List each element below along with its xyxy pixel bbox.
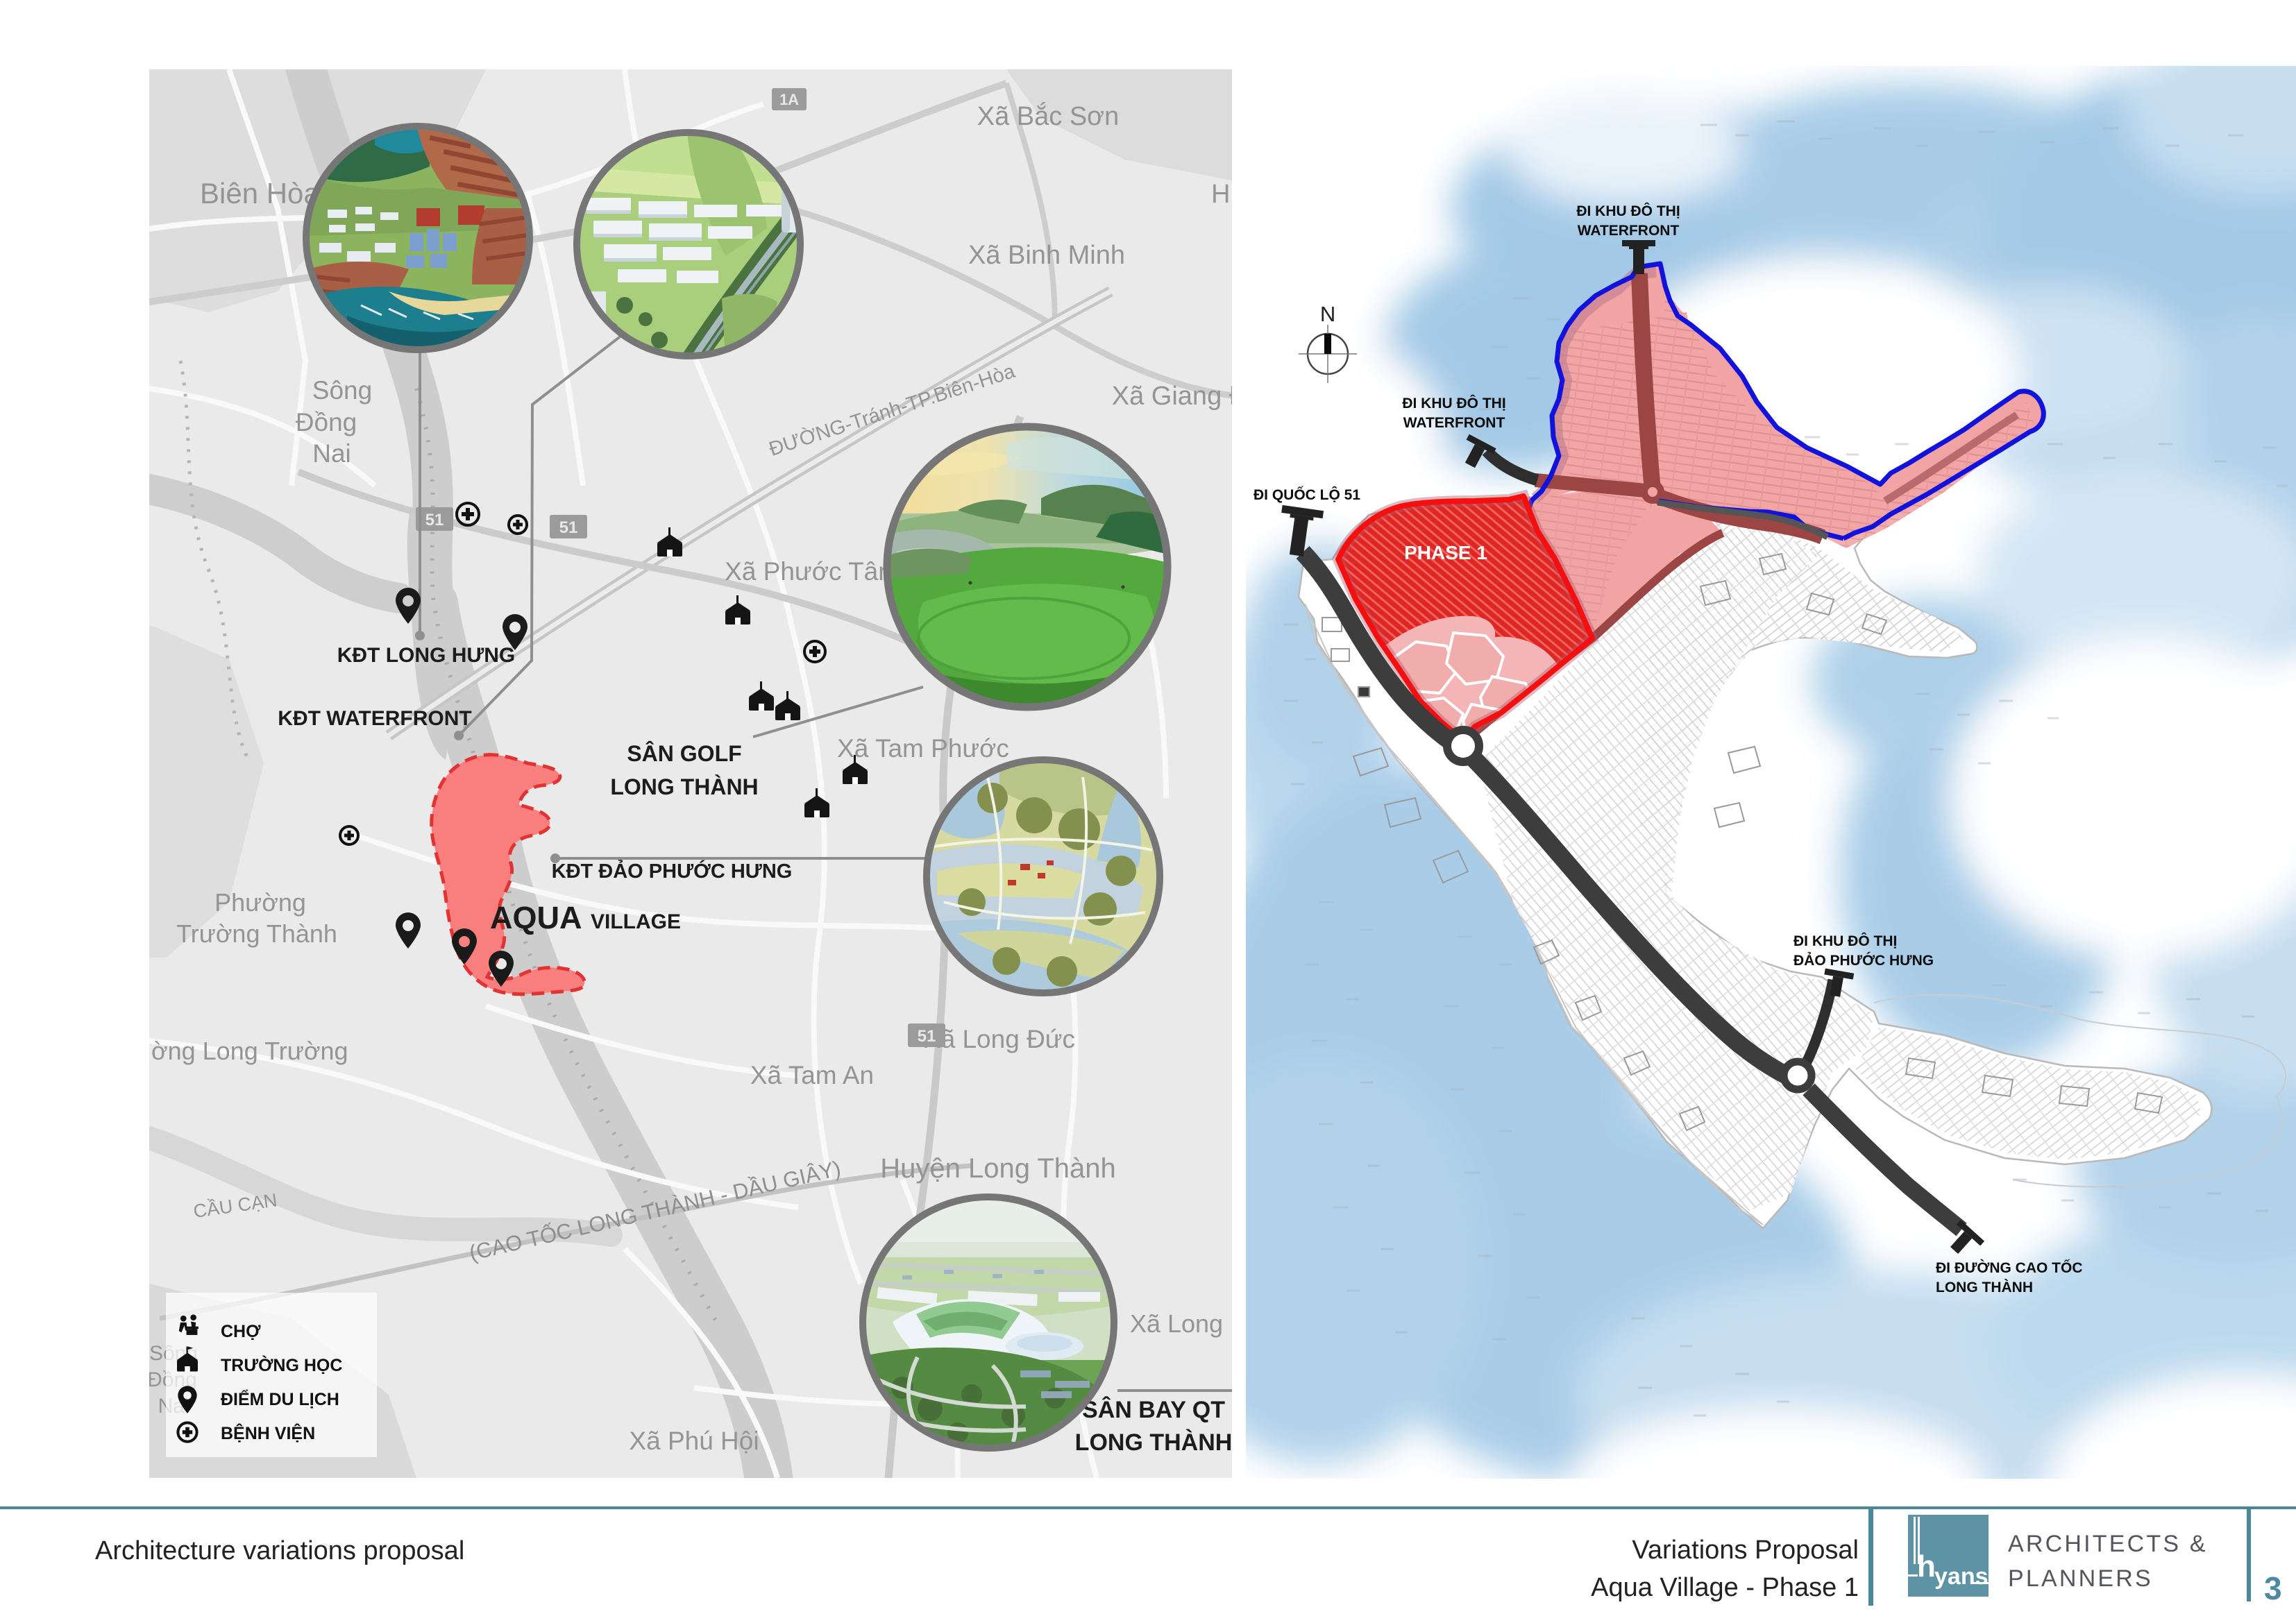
svg-text:WATERFRONT: WATERFRONT — [1578, 223, 1680, 239]
svg-text:ĐI ĐƯỜNG CAO TỐC: ĐI ĐƯỜNG CAO TỐC — [1936, 1259, 2083, 1276]
svg-text:PHASE 1: PHASE 1 — [1404, 542, 1487, 563]
svg-text:3: 3 — [2264, 1570, 2282, 1606]
svg-text:ĐI KHU ĐÔ THỊ: ĐI KHU ĐÔ THỊ — [1793, 933, 1897, 949]
svg-text:AQUA: AQUA — [490, 900, 582, 935]
svg-text:Xã Giang Đ: Xã Giang Đ — [1112, 382, 1248, 411]
svg-text:Xã Phước Tân: Xã Phước Tân — [725, 557, 893, 586]
svg-text:H: H — [1211, 180, 1230, 209]
svg-text:Variations Proposal: Variations Proposal — [1632, 1536, 1859, 1565]
svg-text:Sông: Sông — [312, 376, 372, 405]
svg-text:51: 51 — [918, 1027, 936, 1046]
svg-text:SÂN BAY QT: SÂN BAY QT — [1082, 1397, 1225, 1423]
svg-text:Nai: Nai — [312, 439, 351, 468]
svg-text:SÂN GOLF: SÂN GOLF — [627, 741, 741, 766]
svg-text:ĐIỂM DU LỊCH: ĐIỂM DU LỊCH — [221, 1389, 339, 1409]
svg-text:Phường: Phường — [214, 888, 306, 917]
svg-text:Huyện Long Thành: Huyện Long Thành — [880, 1153, 1116, 1184]
svg-text:LONG THÀNH: LONG THÀNH — [610, 774, 758, 799]
svg-text:ARCHITECTS &: ARCHITECTS & — [2008, 1531, 2208, 1557]
svg-text:KĐT ĐẢO PHƯỚC HƯNG: KĐT ĐẢO PHƯỚC HƯNG — [552, 859, 793, 883]
svg-text:KĐT WATERFRONT: KĐT WATERFRONT — [278, 707, 471, 730]
svg-text:Xã Long: Xã Long — [1130, 1309, 1223, 1338]
svg-text:yans: yans — [1934, 1563, 1989, 1590]
svg-text:Đồng: Đồng — [296, 408, 357, 436]
svg-text:Xã Tam Phước: Xã Tam Phước — [837, 734, 1009, 763]
svg-text:1A: 1A — [779, 91, 799, 108]
svg-text:ờng Long Trường: ờng Long Trường — [151, 1037, 348, 1065]
svg-text:h: h — [1917, 1549, 1936, 1583]
svg-text:PLANNERS: PLANNERS — [2008, 1565, 2153, 1592]
svg-text:51: 51 — [425, 511, 444, 529]
svg-text:ĐI KHU ĐÔ THỊ: ĐI KHU ĐÔ THỊ — [1576, 203, 1680, 219]
svg-text:ĐI QUỐC LỘ 51: ĐI QUỐC LỘ 51 — [1253, 486, 1360, 503]
svg-text:ĐẢO PHƯỚC HƯNG: ĐẢO PHƯỚC HƯNG — [1793, 952, 1934, 969]
svg-text:CHỢ: CHỢ — [221, 1322, 261, 1341]
svg-text:ĐI KHU ĐÔ THỊ: ĐI KHU ĐÔ THỊ — [1402, 395, 1505, 411]
svg-text:Xã Phú Hội: Xã Phú Hội — [629, 1427, 759, 1455]
svg-text:Biên Hòa: Biên Hòa — [200, 177, 320, 210]
svg-text:LONG THÀNH: LONG THÀNH — [1936, 1280, 2033, 1295]
svg-text:VILLAGE: VILLAGE — [591, 910, 681, 933]
svg-text:Xã Binh Minh: Xã Binh Minh — [968, 241, 1125, 270]
svg-text:51: 51 — [559, 518, 578, 537]
svg-text:Xã Bắc Sơn: Xã Bắc Sơn — [977, 101, 1119, 131]
svg-text:Xã Long Đức: Xã Long Đức — [924, 1025, 1075, 1053]
svg-text:TRƯỜNG HỌC: TRƯỜNG HỌC — [221, 1354, 342, 1375]
svg-text:BỆNH VIỆN: BỆNH VIỆN — [221, 1422, 315, 1443]
svg-text:Aqua Village - Phase 1: Aqua Village - Phase 1 — [1591, 1573, 1859, 1602]
svg-text:N: N — [1320, 302, 1335, 326]
svg-text:Trường Thành: Trường Thành — [176, 919, 337, 948]
svg-text:Architecture variations propos: Architecture variations proposal — [95, 1536, 464, 1565]
svg-text:WATERFRONT: WATERFRONT — [1403, 415, 1505, 431]
svg-text:KĐT LONG HƯNG: KĐT LONG HƯNG — [337, 644, 516, 667]
svg-text:Xã Tam An: Xã Tam An — [750, 1061, 874, 1089]
svg-text:LONG THÀNH: LONG THÀNH — [1075, 1429, 1233, 1456]
